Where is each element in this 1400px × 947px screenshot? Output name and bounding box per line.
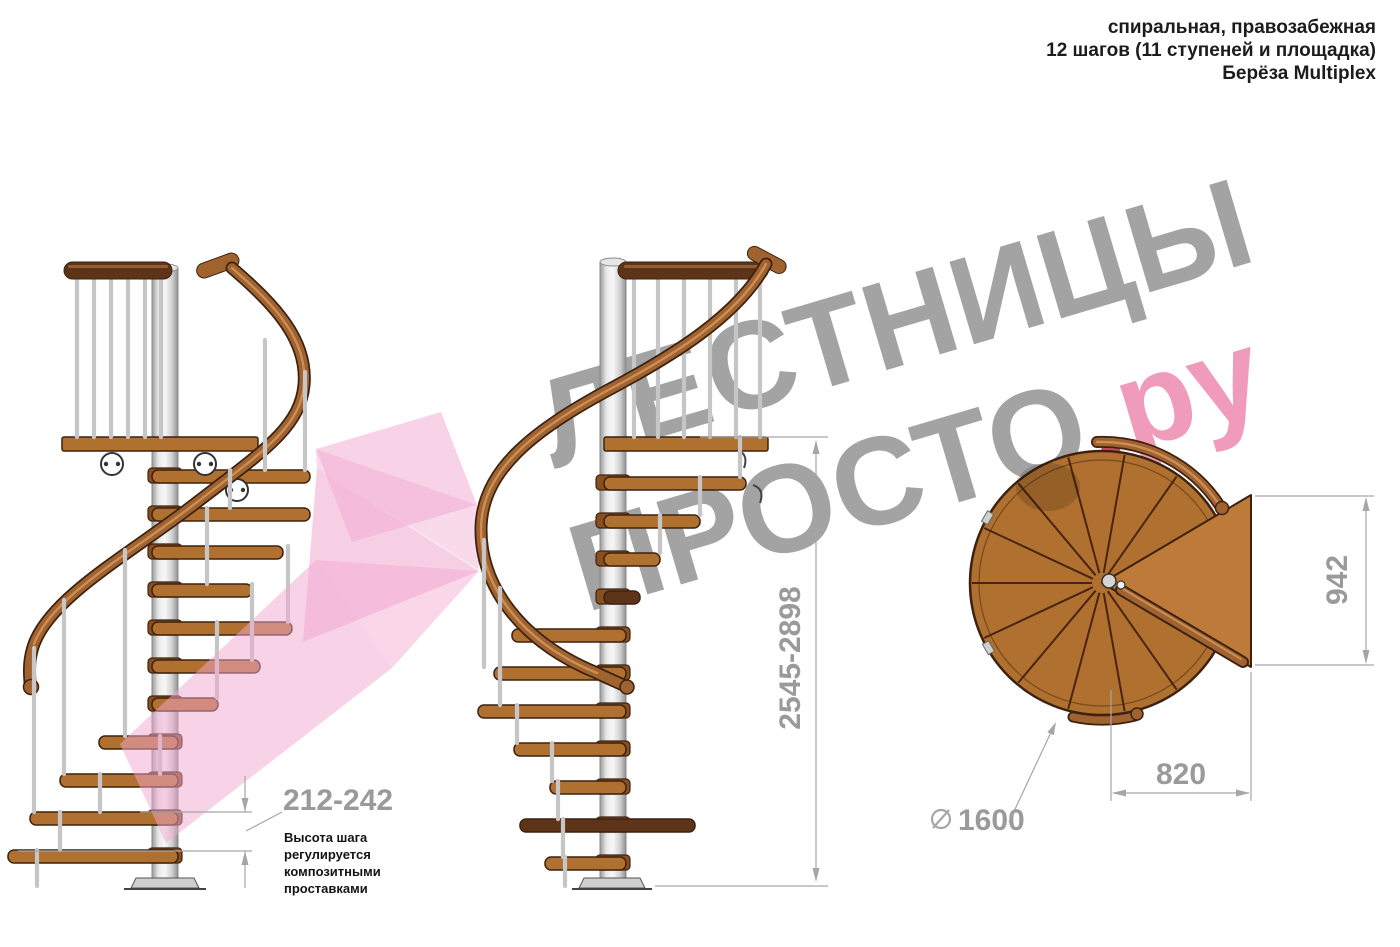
description-line-material: Берёза Multiplex (1046, 62, 1376, 85)
dimension-plan-height: 942 (1255, 496, 1374, 665)
plan-view (970, 442, 1251, 720)
landing-platform (604, 437, 768, 451)
step-height-value: 212-242 (283, 784, 393, 817)
plan-width-value: 820 (1156, 758, 1206, 791)
description-line-steps: 12 шагов (11 ступеней и площадка) (1046, 39, 1376, 62)
product-description: спиральная, правозабежная 12 шагов (11 с… (1046, 16, 1376, 85)
side-and-plan-layer: 212-242 Высота шага регулируется компози… (0, 0, 1400, 947)
plan-height-value: 942 (1321, 555, 1354, 605)
plan-center-joint (1117, 581, 1125, 589)
landing-handrail-bar (618, 262, 768, 279)
step-height-note-3: композитными (284, 864, 381, 879)
handrail-end-curl (620, 680, 634, 694)
technical-drawing-spiral-staircase: ЛЕСТНИЦЫ ПРОСТО.ру (0, 0, 1400, 947)
step-height-note-2: регулируется (284, 847, 371, 862)
step-height-note-1: Высота шага (284, 830, 368, 845)
side-elevation-view (478, 244, 789, 889)
handrail-highlight (624, 265, 762, 268)
description-line-type: спиральная, правозабежная (1046, 16, 1376, 39)
total-height-value: 2545-2898 (774, 586, 807, 729)
dimension-step-height: 212-242 Высота шага регулируется компози… (18, 776, 393, 896)
watermark-shadow (1016, 463, 1080, 511)
step-height-note-4: проставками (284, 881, 368, 896)
pole-base (579, 878, 645, 888)
plan-center-pole (1102, 574, 1116, 588)
dimension-diameter: 1600 (932, 722, 1056, 837)
